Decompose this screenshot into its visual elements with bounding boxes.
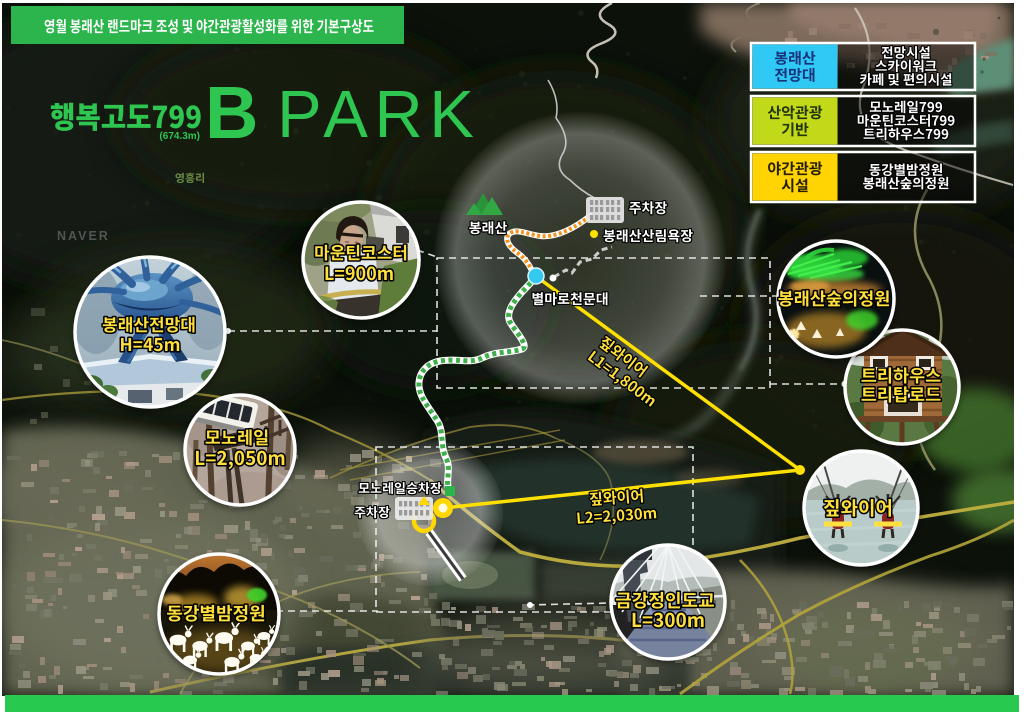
svg-text:NAVER: NAVER (57, 229, 110, 243)
svg-text:PARK: PARK (277, 77, 480, 152)
svg-text:(674.3m): (674.3m) (159, 131, 200, 142)
svg-text:B: B (205, 71, 258, 154)
